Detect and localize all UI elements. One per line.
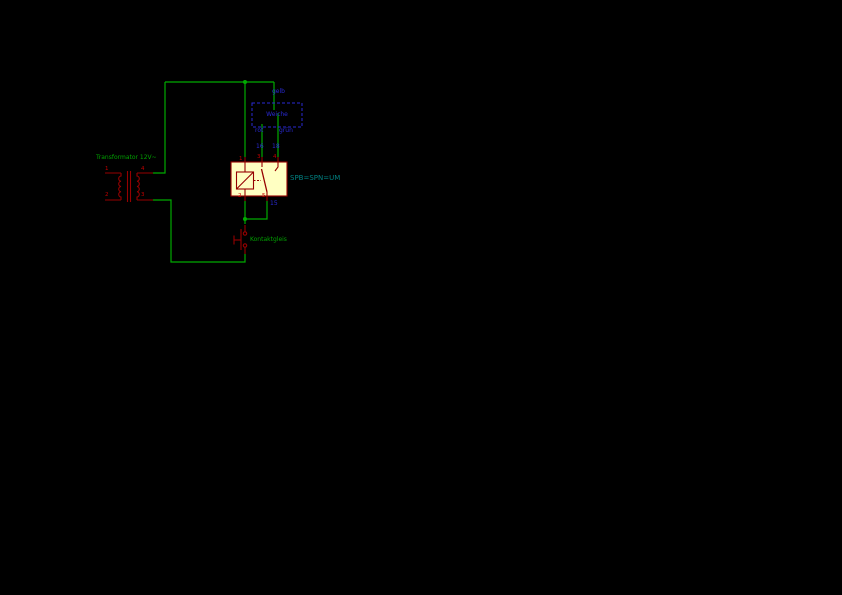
transformer-value-label[interactable]: Transformator 12V~ [96, 155, 157, 162]
junction-dot-top [243, 80, 247, 84]
wire-bottom-return[interactable] [153, 200, 245, 262]
terminal-label-16[interactable]: 16 [256, 144, 264, 151]
schematic-canvas: { "schematic": { "transformer": { "value… [0, 0, 842, 595]
transformer-primary-winding [119, 173, 121, 200]
turnout-wire-label-gelb[interactable]: gelb [272, 89, 285, 96]
transformer-pin-4: 4 [141, 166, 145, 172]
transformer-pin-2: 2 [105, 192, 109, 198]
turnout-wire-label-gruen[interactable]: grün [279, 128, 293, 135]
junction-dot-bottom [243, 217, 247, 221]
relay-pin-number-2: 2 [238, 193, 242, 199]
contact-track-switch[interactable] [234, 225, 247, 254]
transformer-core [128, 171, 131, 202]
relay-pin-number-1: 1 [239, 156, 243, 162]
turnout-name-label[interactable]: Weiche [252, 112, 302, 119]
relay-pin-number-3: 3 [257, 154, 261, 160]
switch-contact-bottom [243, 244, 246, 247]
transformer-pin-3: 3 [141, 192, 145, 198]
transformer-symbol[interactable] [105, 171, 153, 202]
wire-common[interactable] [245, 201, 267, 219]
switch-contact-top [243, 232, 246, 235]
relay-body[interactable] [231, 162, 287, 196]
contact-track-value-label[interactable]: Kontaktgleis [250, 237, 287, 244]
relay-pin-number-4: 4 [273, 154, 277, 160]
schematic-drawing [0, 0, 842, 595]
turnout-wire-label-rot[interactable]: rot [255, 128, 263, 135]
transformer-pin-1: 1 [105, 166, 109, 172]
relay-pin-number-5: 5 [262, 193, 266, 199]
terminal-label-15[interactable]: 15 [270, 201, 278, 208]
terminal-label-18[interactable]: 18 [272, 144, 280, 151]
transformer-secondary-winding [137, 173, 139, 200]
relay-value-label[interactable]: SPB=SPN=UM [290, 175, 340, 183]
transformer-pins [105, 173, 153, 200]
